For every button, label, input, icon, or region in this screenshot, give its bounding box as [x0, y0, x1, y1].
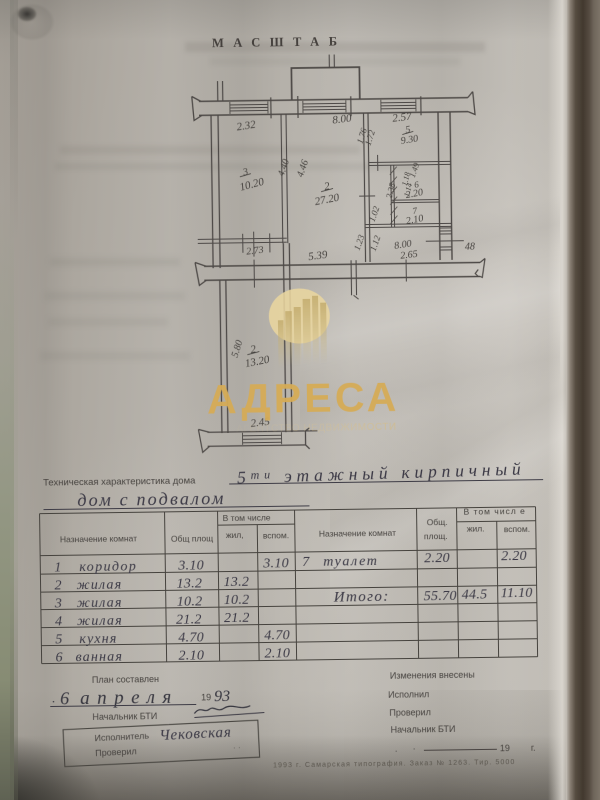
- svg-text:Проверил: Проверил: [95, 746, 137, 758]
- svg-text:21.2: 21.2: [224, 611, 250, 626]
- svg-text:10.20: 10.20: [238, 176, 265, 194]
- svg-text:10.2: 10.2: [224, 593, 250, 608]
- svg-text:3: 3: [241, 166, 250, 178]
- svg-text:. .: . .: [233, 740, 241, 750]
- svg-text:жилая: жилая: [76, 577, 122, 593]
- svg-text:Техническая характеристика д: Техническая характеристика дома: [43, 475, 196, 488]
- svg-text:В том числ е: В том числ е: [464, 506, 526, 517]
- svg-text:2.73: 2.73: [246, 245, 265, 258]
- svg-text:11.10: 11.10: [501, 586, 533, 601]
- svg-text:жилая: жилая: [77, 613, 123, 629]
- svg-text:3: 3: [54, 596, 63, 611]
- svg-text:г.: г.: [531, 743, 536, 753]
- svg-text:1.23: 1.23: [352, 233, 367, 252]
- svg-text:.: .: [52, 690, 55, 705]
- svg-text:.: .: [395, 744, 398, 754]
- svg-text:13.2: 13.2: [176, 576, 202, 591]
- svg-text:Итого:: Итого:: [333, 589, 390, 606]
- svg-text:Изменения внесены: Изменения внесены: [390, 670, 475, 681]
- svg-text:2.20: 2.20: [424, 551, 450, 566]
- svg-text:жил,: жил,: [226, 530, 244, 540]
- svg-text:19: 19: [201, 692, 211, 702]
- svg-text:3.10: 3.10: [177, 558, 204, 573]
- svg-text:10.2: 10.2: [177, 594, 203, 609]
- svg-text:6: 6: [55, 650, 63, 665]
- svg-text:кухня: кухня: [79, 632, 117, 648]
- svg-text:туалет: туалет: [323, 554, 378, 570]
- svg-text:2.20: 2.20: [501, 549, 527, 564]
- svg-text:жил.: жил.: [467, 523, 485, 533]
- svg-text:1.49: 1.49: [407, 161, 422, 179]
- svg-text:В том числе: В том числе: [223, 512, 271, 523]
- svg-text:2.32: 2.32: [236, 119, 257, 134]
- svg-text:44.5: 44.5: [462, 587, 488, 602]
- svg-text:19: 19: [500, 743, 510, 753]
- svg-text:2.38: 2.38: [384, 181, 398, 199]
- svg-text:2: 2: [54, 578, 62, 593]
- svg-text:вспом.: вспом.: [504, 524, 530, 534]
- svg-text:Проверил: Проверил: [389, 707, 431, 718]
- svg-text:4.70: 4.70: [264, 628, 290, 643]
- svg-text:Чековская: Чековская: [159, 724, 232, 744]
- svg-text:13.2: 13.2: [223, 575, 249, 590]
- svg-text:Общ.: Общ.: [427, 517, 448, 527]
- svg-text:4.40: 4.40: [276, 158, 292, 178]
- svg-text:План составлен: План составлен: [92, 674, 159, 685]
- svg-text:2.65: 2.65: [400, 249, 419, 262]
- svg-text:Начальник БТИ: Начальник БТИ: [391, 724, 456, 735]
- svg-text:4: 4: [55, 614, 63, 629]
- svg-text:АДРЕСА: АДРЕСА: [207, 374, 400, 423]
- svg-text:4.70: 4.70: [178, 630, 204, 645]
- svg-text:55.70: 55.70: [424, 589, 457, 604]
- svg-text:.: .: [413, 741, 416, 751]
- svg-text:АГЕНТСТВО НЕДВИЖИМОСТИ: АГЕНТСТВО НЕДВИЖИМОСТИ: [236, 422, 396, 435]
- svg-text:2.57: 2.57: [392, 111, 413, 125]
- svg-text:Назначение комнат: Назначение комнат: [60, 533, 137, 544]
- svg-text:2.10: 2.10: [264, 646, 290, 661]
- svg-text:27.20: 27.20: [314, 192, 341, 209]
- svg-text:жилая: жилая: [77, 595, 123, 611]
- svg-text:3.10: 3.10: [262, 556, 289, 571]
- svg-text:5: 5: [55, 632, 63, 647]
- svg-text:1: 1: [54, 560, 62, 575]
- svg-text:2.10: 2.10: [178, 648, 204, 663]
- svg-text:вспом.: вспом.: [263, 530, 289, 540]
- svg-text:8.00: 8.00: [332, 112, 353, 126]
- svg-text:6: 6: [60, 688, 69, 708]
- svg-text:5.39: 5.39: [308, 249, 329, 263]
- svg-text:Исполнил: Исполнил: [388, 689, 429, 700]
- svg-text:площ.: площ.: [424, 531, 448, 541]
- svg-text:ванная: ванная: [75, 649, 123, 665]
- svg-text:21.2: 21.2: [176, 612, 202, 627]
- svg-text:1993 г. Самарская типография: 1993 г. Самарская типография. Заказ № 12…: [273, 759, 515, 769]
- svg-text:5.80: 5.80: [230, 339, 246, 359]
- svg-text:48: 48: [465, 242, 475, 253]
- svg-text:дом с подвалом: дом с подвалом: [77, 488, 225, 510]
- svg-text:4.46: 4.46: [295, 159, 311, 179]
- svg-text:Исполнитель: Исполнитель: [94, 731, 149, 744]
- svg-text:13.20: 13.20: [244, 354, 271, 371]
- svg-text:МАСШТАБ: МАСШТАБ: [212, 34, 347, 50]
- svg-text:коридор: коридор: [79, 559, 137, 575]
- svg-text:7: 7: [302, 555, 310, 570]
- svg-text:2.10: 2.10: [405, 213, 424, 227]
- svg-text:93: 93: [214, 688, 230, 705]
- svg-text:Общ площ: Общ площ: [171, 533, 213, 544]
- svg-text:Назначение комнат: Назначение комнат: [319, 528, 396, 539]
- svg-text:9.30: 9.30: [400, 133, 419, 147]
- svg-text:Начальник БТИ: Начальник БТИ: [92, 711, 157, 722]
- svg-text:2.20: 2.20: [405, 187, 424, 201]
